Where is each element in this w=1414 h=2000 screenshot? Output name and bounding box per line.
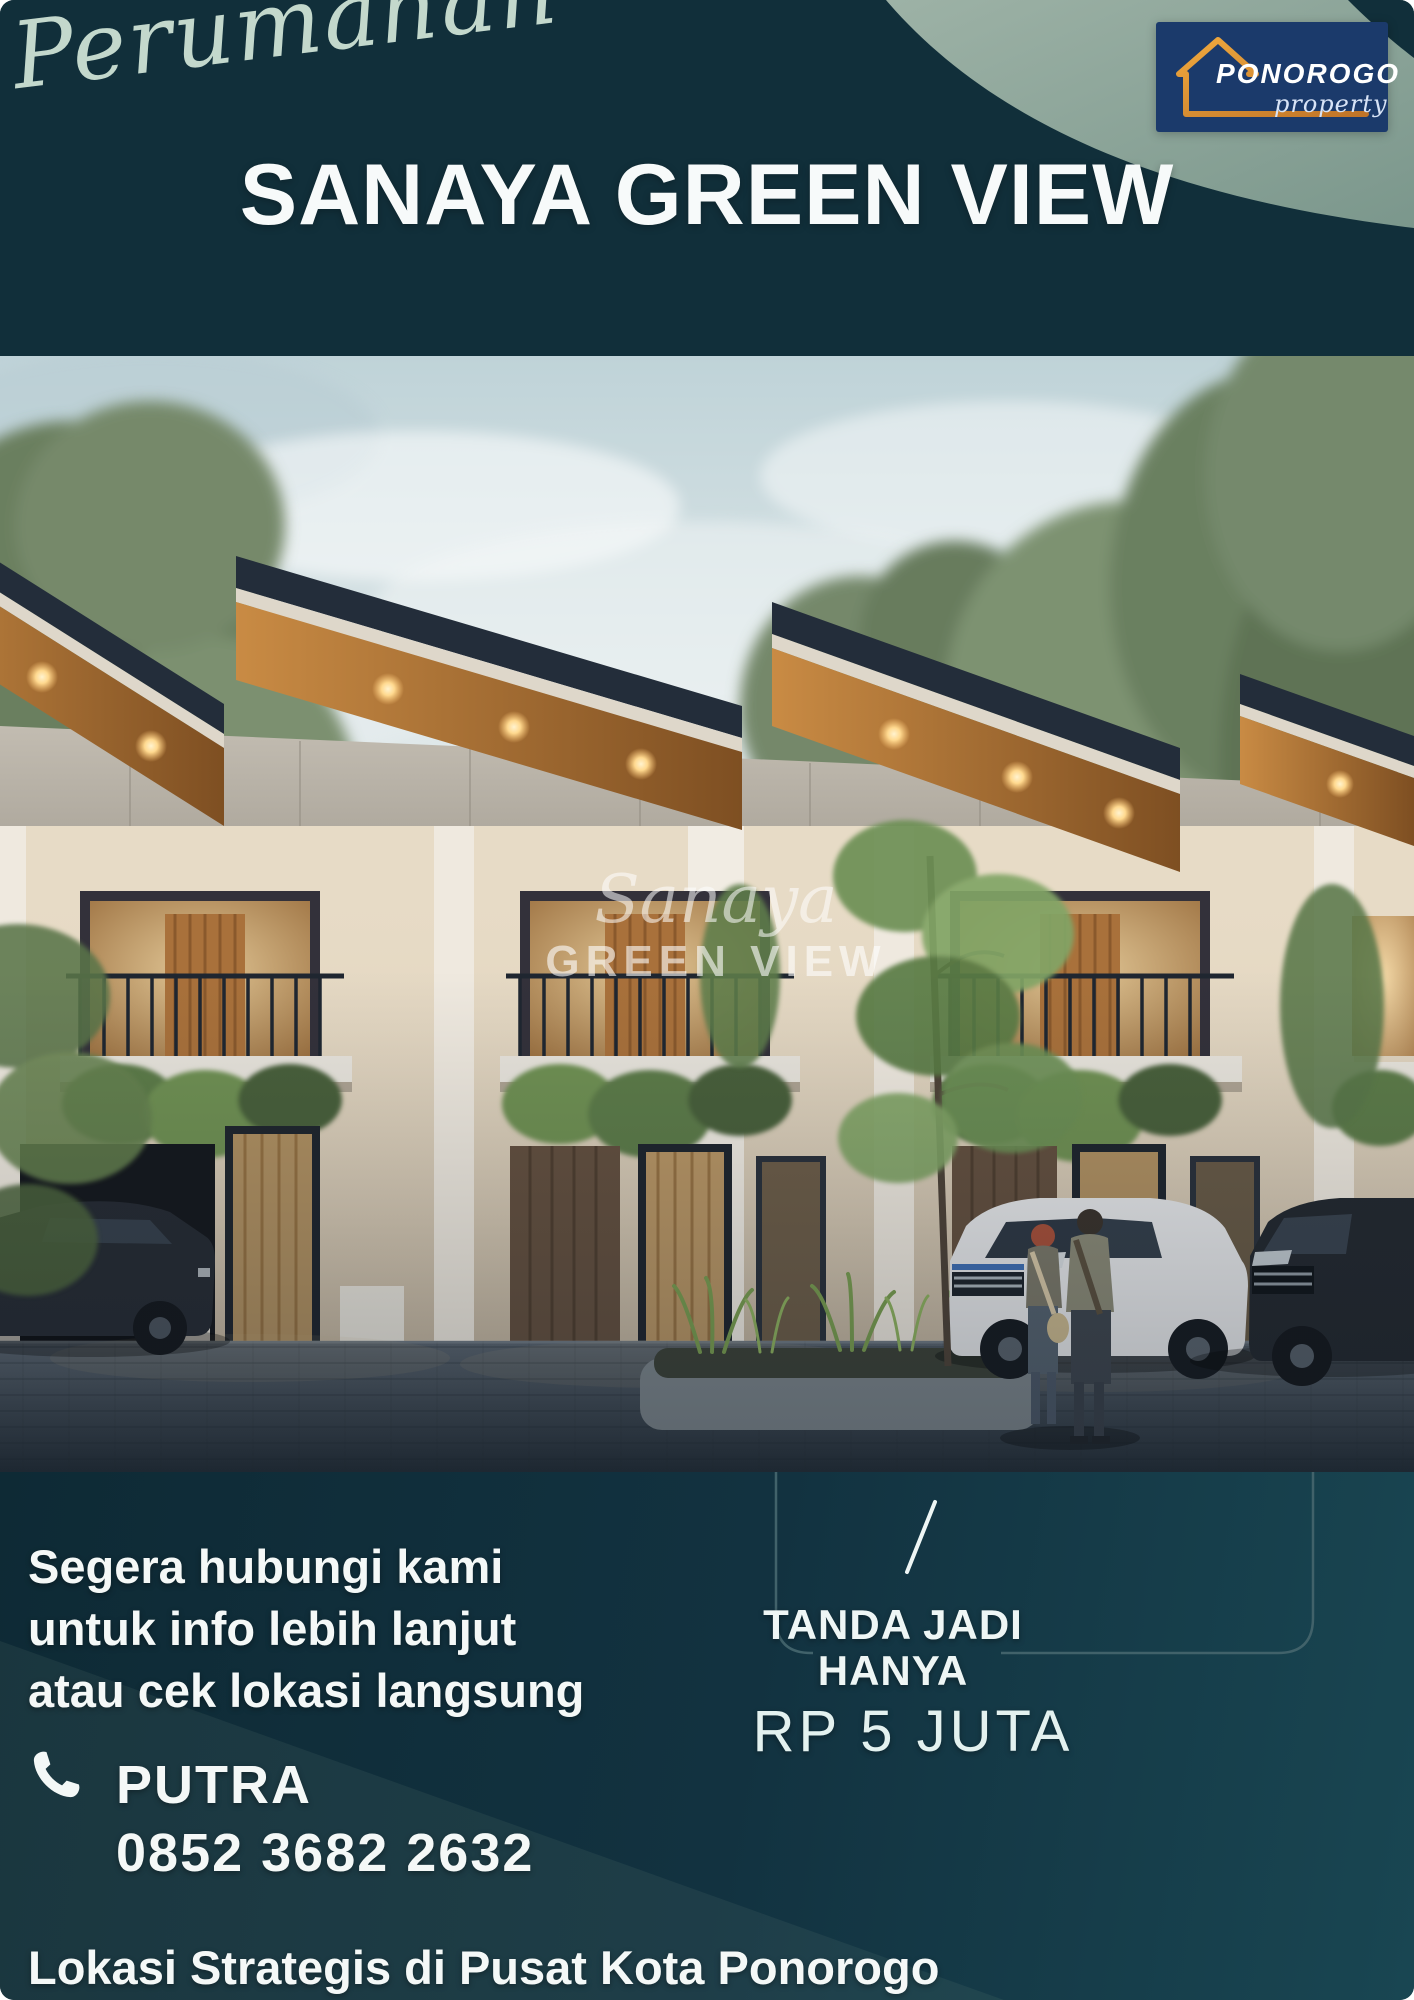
logo-subtitle: property bbox=[1274, 90, 1388, 118]
slash-mark bbox=[907, 1502, 935, 1572]
company-logo: PONOROGO property bbox=[1156, 22, 1388, 132]
contact-line-3: atau cek lokasi langsung bbox=[28, 1660, 584, 1722]
flyer-page: Perumahan SANAYA GREEN VIEW PONOROGO pro… bbox=[0, 0, 1414, 2000]
contact-section: Segera hubungi kami untuk info lebih lan… bbox=[0, 1472, 1414, 2000]
contact-message: Segera hubungi kami untuk info lebih lan… bbox=[28, 1536, 584, 1722]
property-photo: Sanaya GREEN VIEW bbox=[0, 356, 1414, 1472]
header: Perumahan SANAYA GREEN VIEW PONOROGO pro… bbox=[0, 0, 1414, 356]
offer-label-line-1: TANDA JADI bbox=[693, 1602, 1093, 1648]
contact-line-1: Segera hubungi kami bbox=[28, 1536, 584, 1598]
logo-name: PONOROGO bbox=[1216, 58, 1400, 90]
watermark-caps: GREEN VIEW bbox=[545, 937, 886, 986]
offer-label-line-2: HANYA bbox=[693, 1648, 1093, 1694]
photo-watermark: Sanaya GREEN VIEW bbox=[545, 861, 886, 986]
watermark-script: Sanaya bbox=[594, 861, 837, 938]
page-title: SANAYA GREEN VIEW bbox=[0, 146, 1414, 245]
location-tagline: Lokasi Strategis di Pusat Kota Ponorogo bbox=[28, 1940, 939, 1995]
contact-phone-number: 0852 3682 2632 bbox=[116, 1822, 534, 1884]
contact-line-2: untuk info lebih lanjut bbox=[28, 1598, 584, 1660]
house-render-scene: Sanaya GREEN VIEW bbox=[0, 356, 1414, 1472]
offer-label: TANDA JADI HANYA bbox=[693, 1602, 1093, 1694]
phone-icon bbox=[30, 1748, 82, 1802]
contact-person-name: PUTRA bbox=[116, 1754, 312, 1816]
offer-price: RP 5 JUTA bbox=[693, 1698, 1133, 1765]
